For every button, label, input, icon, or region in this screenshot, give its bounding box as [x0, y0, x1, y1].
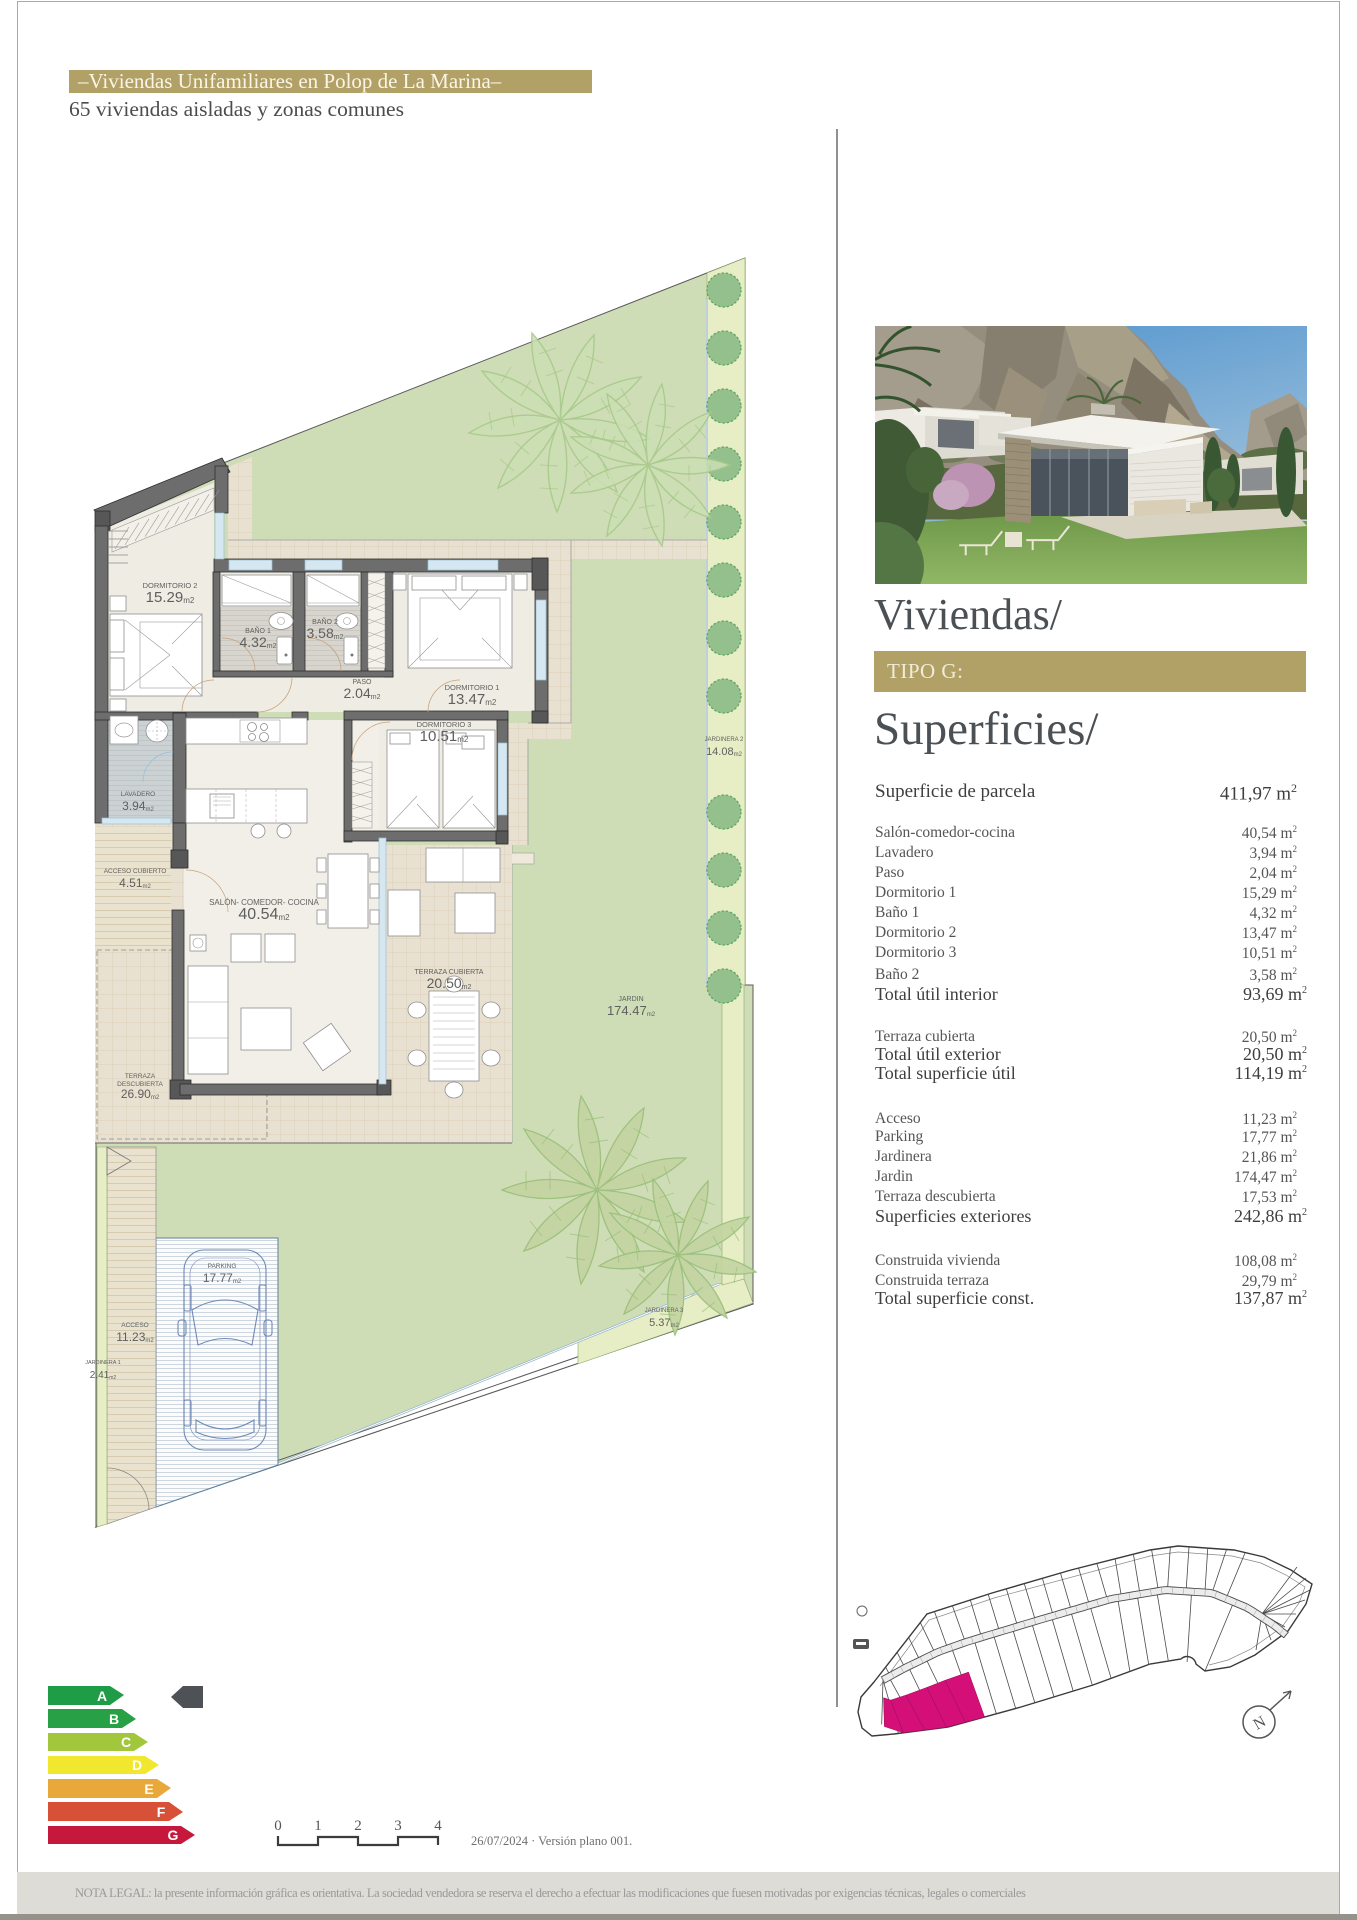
svg-text:TERRAZA: TERRAZA [125, 1073, 156, 1080]
svg-text:4: 4 [434, 1818, 442, 1834]
svg-text:G: G [168, 1827, 179, 1843]
svg-text:N: N [1250, 1713, 1269, 1734]
svg-text:C: C [121, 1734, 131, 1750]
svg-text:JARDINERA 2: JARDINERA 2 [705, 737, 744, 743]
svg-text:3: 3 [394, 1818, 402, 1834]
svg-text:JARDINERA 1: JARDINERA 1 [85, 1360, 120, 1366]
svg-text:ACCESO CUBIERTO: ACCESO CUBIERTO [104, 868, 167, 875]
svg-text:LAVADERO: LAVADERO [121, 791, 155, 798]
svg-text:E: E [144, 1781, 153, 1797]
svg-text:A: A [97, 1688, 107, 1704]
svg-text:2: 2 [354, 1818, 362, 1834]
svg-text:JARDIN: JARDIN [618, 996, 643, 1003]
svg-text:B: B [109, 1711, 119, 1727]
svg-text:PARKING: PARKING [208, 1263, 237, 1270]
svg-text:D: D [132, 1757, 142, 1773]
svg-text:F: F [157, 1804, 166, 1820]
svg-text:0: 0 [274, 1818, 282, 1834]
svg-text:ACCESO: ACCESO [121, 1322, 148, 1329]
svg-text:JARDINERA 3: JARDINERA 3 [645, 1308, 684, 1314]
svg-text:1: 1 [314, 1818, 322, 1834]
